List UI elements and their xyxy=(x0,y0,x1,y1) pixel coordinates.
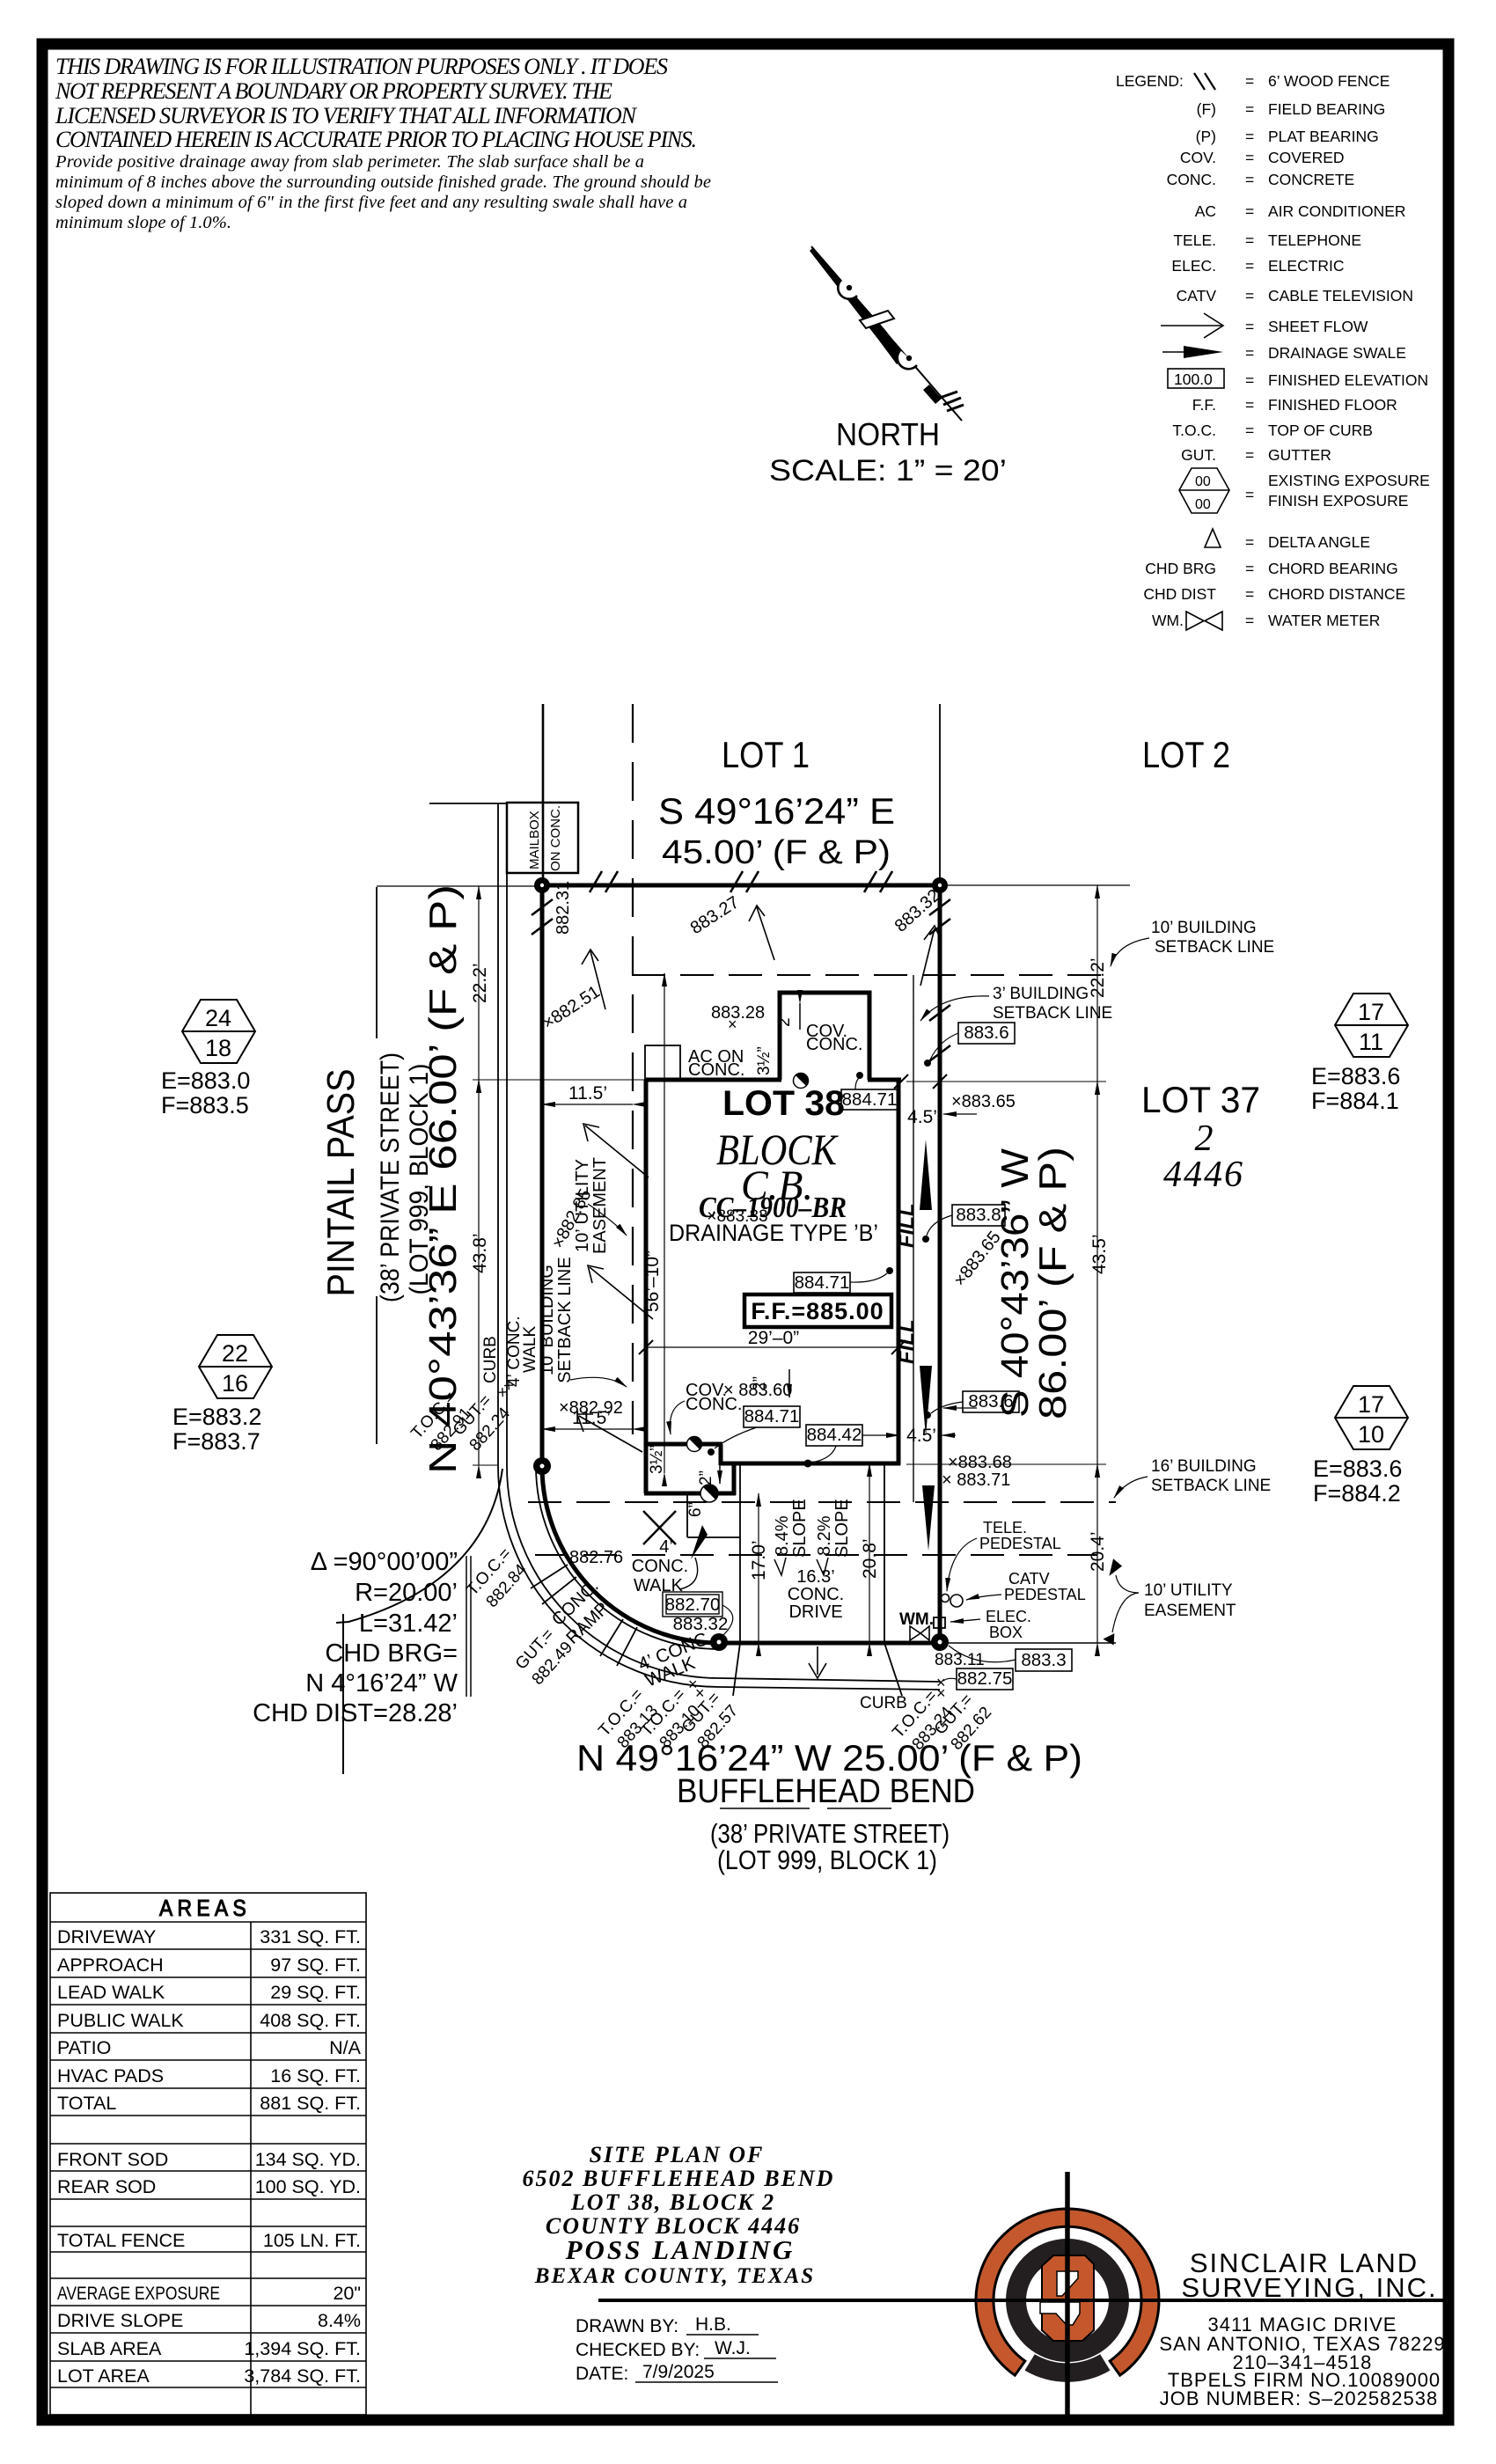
svg-text:minimum of 8 inches above the: minimum of 8 inches above the surroundin… xyxy=(55,172,711,192)
svg-text:×883.68: ×883.68 xyxy=(948,1453,1012,1472)
svg-text:4.5’: 4.5’ xyxy=(906,1426,936,1446)
svg-text:FRONT SOD: FRONT SOD xyxy=(57,2149,168,2170)
svg-text:=: = xyxy=(1245,446,1254,464)
svg-text:=: = xyxy=(1245,318,1254,335)
svg-text:00: 00 xyxy=(1195,474,1211,489)
svg-text:=: = xyxy=(1245,585,1254,603)
svg-text:CONC.: CONC. xyxy=(788,1585,844,1604)
svg-text:882.70: 882.70 xyxy=(665,1595,721,1615)
svg-text:COV.: COV. xyxy=(1180,149,1216,166)
svg-text:=: = xyxy=(1245,287,1254,304)
svg-text:16.3’: 16.3’ xyxy=(796,1567,834,1587)
svg-text:F=883.5: F=883.5 xyxy=(161,1092,249,1118)
svg-text:883.28: 883.28 xyxy=(711,1003,765,1023)
svg-text:CATV: CATV xyxy=(1008,1570,1050,1588)
svg-text:8.2%: 8.2% xyxy=(815,1515,834,1556)
svg-text:331 SQ. FT.: 331 SQ. FT. xyxy=(260,1926,361,1947)
svg-text:E=883.6: E=883.6 xyxy=(1311,1063,1400,1089)
svg-text:BUFFLEHEAD BEND: BUFFLEHEAD BEND xyxy=(677,1773,975,1810)
svg-text:11.5’: 11.5’ xyxy=(568,1083,607,1104)
svg-text:882.75: 882.75 xyxy=(957,1668,1013,1689)
svg-text:PATIO: PATIO xyxy=(57,2037,111,2058)
svg-text:11: 11 xyxy=(1359,1029,1383,1055)
svg-text:(LOT 999, BLOCK 1): (LOT 999, BLOCK 1) xyxy=(717,1844,937,1875)
svg-text:TOTAL: TOTAL xyxy=(57,2093,116,2114)
svg-text:10’ BUILDING: 10’ BUILDING xyxy=(1151,919,1257,937)
svg-text:2”: 2” xyxy=(775,1012,794,1027)
svg-text:134 SQ. YD.: 134 SQ. YD. xyxy=(255,2149,361,2170)
svg-text:FINISH EXPOSURE: FINISH EXPOSURE xyxy=(1268,492,1408,510)
svg-text:H.B.: H.B. xyxy=(695,2314,731,2335)
svg-text:TELE.: TELE. xyxy=(1173,231,1216,249)
svg-text:sloped down a minimum of 6" in: sloped down a minimum of 6" in the first… xyxy=(55,193,687,212)
svg-text:3½”: 3½” xyxy=(648,1445,666,1474)
svg-text:TELEPHONE: TELEPHONE xyxy=(1268,231,1361,249)
svg-text:3,784 SQ. FT.: 3,784 SQ. FT. xyxy=(244,2365,361,2387)
svg-text:L=31.42’: L=31.42’ xyxy=(359,1610,458,1638)
svg-text:PEDESTAL: PEDESTAL xyxy=(979,1535,1061,1552)
svg-text:minimum slope of 1.0%.: minimum slope of 1.0%. xyxy=(55,213,231,232)
svg-text:DRIVE: DRIVE xyxy=(788,1602,842,1622)
svg-text:881 SQ. FT.: 881 SQ. FT. xyxy=(260,2093,361,2114)
svg-text:FILL: FILL xyxy=(895,1319,919,1364)
svg-text:00: 00 xyxy=(1195,497,1211,512)
svg-text:CATV: CATV xyxy=(1177,287,1217,304)
svg-text:× 883.60: × 883.60 xyxy=(723,1381,792,1400)
svg-text:4.5’: 4.5’ xyxy=(907,1107,937,1127)
svg-text:DRAINAGE TYPE ’B’: DRAINAGE TYPE ’B’ xyxy=(669,1220,878,1246)
svg-text:TELE.: TELE. xyxy=(983,1519,1027,1536)
svg-text:884.71: 884.71 xyxy=(842,1089,898,1110)
svg-text:100.0: 100.0 xyxy=(1174,370,1213,388)
svg-text:CONTAINED HEREIN IS ACCURATE P: CONTAINED HEREIN IS ACCURATE PRIOR TO PL… xyxy=(55,127,697,152)
svg-text:24: 24 xyxy=(205,1005,231,1031)
svg-text:29’–0”: 29’–0” xyxy=(748,1328,799,1348)
svg-text:8.4%: 8.4% xyxy=(773,1515,792,1556)
svg-text:× 883.71: × 883.71 xyxy=(942,1470,1010,1490)
svg-text:AIR CONDITIONER: AIR CONDITIONER xyxy=(1268,202,1406,220)
svg-text:SETBACK LINE: SETBACK LINE xyxy=(1155,938,1274,957)
svg-text:GUTTER: GUTTER xyxy=(1268,446,1331,464)
svg-text:TOP OF CURB: TOP OF CURB xyxy=(1268,422,1373,439)
svg-text:SLOPE: SLOPE xyxy=(832,1499,852,1558)
svg-text:AC: AC xyxy=(1195,202,1216,220)
svg-text:DRAINAGE SWALE: DRAINAGE SWALE xyxy=(1268,344,1406,362)
svg-text:=: = xyxy=(1245,396,1254,414)
svg-text:F=884.2: F=884.2 xyxy=(1313,1480,1401,1507)
svg-text:R=20.00’: R=20.00’ xyxy=(355,1579,458,1607)
svg-text:CABLE TELEVISION: CABLE TELEVISION xyxy=(1268,287,1413,304)
svg-text:6’ WOOD FENCE: 6’ WOOD FENCE xyxy=(1268,72,1390,90)
svg-text:F=884.1: F=884.1 xyxy=(1311,1088,1399,1114)
svg-text:884.42: 884.42 xyxy=(807,1425,862,1445)
svg-text:ON CONC.: ON CONC. xyxy=(548,805,563,871)
svg-text:F=883.7: F=883.7 xyxy=(172,1428,260,1455)
svg-text:PEDESTAL: PEDESTAL xyxy=(1004,1586,1086,1603)
svg-text:884.71: 884.71 xyxy=(744,1406,800,1426)
svg-text:NOT REPRESENT A BOUNDARY OR PR: NOT REPRESENT A BOUNDARY OR PROPERTY SUR… xyxy=(55,78,612,104)
svg-text:×883.65: ×883.65 xyxy=(951,1092,1016,1111)
svg-text:CURB: CURB xyxy=(860,1694,907,1712)
svg-text:CHD BRG: CHD BRG xyxy=(1145,560,1216,577)
svg-text:FILL: FILL xyxy=(895,1203,919,1248)
svg-text:DRIVE SLOPE: DRIVE SLOPE xyxy=(57,2310,183,2331)
svg-text:LEAD WALK: LEAD WALK xyxy=(57,1982,165,2003)
svg-text:CONC.: CONC. xyxy=(632,1557,688,1576)
svg-text:F.F.: F.F. xyxy=(1192,396,1216,414)
svg-text:883.6: 883.6 xyxy=(964,1023,1008,1043)
svg-text:PUBLIC WALK: PUBLIC WALK xyxy=(57,2010,184,2031)
svg-text:=: = xyxy=(1245,149,1254,166)
svg-text:=: = xyxy=(1245,231,1254,249)
svg-text:W.J.: W.J. xyxy=(715,2338,751,2358)
svg-text:8.4%: 8.4% xyxy=(318,2310,361,2331)
svg-text:SLAB AREA: SLAB AREA xyxy=(57,2338,162,2359)
svg-text:BOX: BOX xyxy=(989,1624,1023,1641)
svg-text:100 SQ. YD.: 100 SQ. YD. xyxy=(255,2176,361,2197)
svg-text:N/A: N/A xyxy=(329,2037,362,2058)
svg-text:105 LN. FT.: 105 LN. FT. xyxy=(263,2230,361,2251)
svg-text:2: 2 xyxy=(1195,1118,1214,1159)
svg-text:E=883.2: E=883.2 xyxy=(172,1404,261,1430)
svg-text:LOT 38, BLOCK 2: LOT 38, BLOCK 2 xyxy=(570,2189,775,2215)
svg-text:TOTAL FENCE: TOTAL FENCE xyxy=(57,2230,185,2251)
svg-text:10: 10 xyxy=(1358,1421,1384,1448)
svg-text:883.11: 883.11 xyxy=(935,1651,985,1669)
svg-text:6502 BUFFLEHEAD BEND: 6502 BUFFLEHEAD BEND xyxy=(523,2166,835,2191)
svg-text:45.00’ (F & P): 45.00’ (F & P) xyxy=(662,834,891,871)
svg-text:22: 22 xyxy=(222,1340,248,1367)
svg-text:N 40°43’36” E 66.00’ (F & P): N 40°43’36” E 66.00’ (F & P) xyxy=(422,884,465,1474)
svg-text:(P): (P) xyxy=(1196,128,1216,145)
svg-text:CHD BRG=: CHD BRG= xyxy=(325,1639,458,1668)
svg-text:SETBACK LINE: SETBACK LINE xyxy=(555,1257,575,1382)
svg-text:AREAS: AREAS xyxy=(159,1895,251,1921)
svg-text:=: = xyxy=(1245,533,1254,551)
svg-text:DATE:: DATE: xyxy=(576,2364,628,2384)
svg-text:=: = xyxy=(1245,371,1254,389)
svg-text:10’ BUILDING: 10’ BUILDING xyxy=(538,1265,557,1375)
svg-text:E=883.0: E=883.0 xyxy=(161,1067,250,1094)
svg-text:=: = xyxy=(1245,612,1254,629)
svg-text:17: 17 xyxy=(1358,1391,1384,1418)
svg-text:LOT AREA: LOT AREA xyxy=(57,2365,150,2387)
svg-text:EASEMENT: EASEMENT xyxy=(590,1157,610,1254)
svg-text:×: × xyxy=(728,1016,737,1033)
svg-text:WALK: WALK xyxy=(521,1326,539,1373)
svg-text:=: = xyxy=(1245,72,1254,90)
svg-text:CHD DIST=28.28’: CHD DIST=28.28’ xyxy=(253,1699,458,1727)
svg-text:ELECTRIC: ELECTRIC xyxy=(1268,257,1345,275)
svg-text:=: = xyxy=(1245,344,1254,362)
svg-text:CHECKED BY:: CHECKED BY: xyxy=(576,2340,700,2360)
svg-text:=: = xyxy=(1245,171,1254,188)
svg-text:20.4’: 20.4’ xyxy=(1088,1531,1108,1572)
svg-text:POSS LANDING: POSS LANDING xyxy=(565,2234,796,2265)
svg-text:=: = xyxy=(1245,202,1254,220)
svg-text:ELEC.: ELEC. xyxy=(1171,257,1216,275)
svg-text:LOT 1: LOT 1 xyxy=(722,734,810,775)
svg-text:SLOPE: SLOPE xyxy=(790,1499,810,1558)
svg-text:1,394 SQ. FT.: 1,394 SQ. FT. xyxy=(244,2338,361,2359)
svg-text:LOT 38: LOT 38 xyxy=(722,1084,845,1123)
svg-text:N 4°16’24” W: N 4°16’24” W xyxy=(305,1669,458,1698)
svg-text:883.3: 883.3 xyxy=(1021,1650,1066,1670)
svg-text:2”: 2” xyxy=(697,1470,715,1485)
svg-text:CHORD BEARING: CHORD BEARING xyxy=(1268,560,1398,577)
svg-text:LOT 2: LOT 2 xyxy=(1142,734,1230,775)
svg-text:F.F.=885.00: F.F.=885.00 xyxy=(751,1298,884,1324)
svg-text:WATER METER: WATER METER xyxy=(1268,612,1380,629)
svg-text:=: = xyxy=(1245,100,1254,118)
svg-text:PINTAIL PASS: PINTAIL PASS xyxy=(319,1069,363,1297)
svg-text:=: = xyxy=(1245,560,1254,577)
svg-text:EASEMENT: EASEMENT xyxy=(1144,1602,1236,1620)
svg-text:4446: 4446 xyxy=(1163,1155,1244,1195)
svg-text:=: = xyxy=(1245,128,1254,145)
svg-text:=: = xyxy=(1245,422,1254,439)
svg-text:882.76: 882.76 xyxy=(569,1548,623,1567)
svg-text:LICENSED SURVEYOR IS TO VERIFY: LICENSED SURVEYOR IS TO VERIFY THAT ALL … xyxy=(55,103,638,128)
svg-text:16: 16 xyxy=(222,1370,248,1397)
svg-text:LOT 37: LOT 37 xyxy=(1141,1079,1260,1120)
svg-text:LEGEND:: LEGEND: xyxy=(1116,72,1184,90)
svg-text:CHORD DISTANCE: CHORD DISTANCE xyxy=(1268,585,1405,603)
svg-text:FINISHED ELEVATION: FINISHED ELEVATION xyxy=(1268,371,1428,389)
svg-text:SHEET FLOW: SHEET FLOW xyxy=(1268,318,1368,335)
svg-text:AVERAGE EXPOSURE: AVERAGE EXPOSURE xyxy=(57,2283,220,2304)
svg-text:(38’ PRIVATE STREET): (38’ PRIVATE STREET) xyxy=(376,1052,405,1302)
svg-text:ELEC.: ELEC. xyxy=(986,1608,1031,1625)
svg-text:3’ BUILDING: 3’ BUILDING xyxy=(993,985,1089,1003)
svg-text:S 40°43’36” W: S 40°43’36” W xyxy=(994,1148,1037,1418)
svg-text:43.8’: 43.8’ xyxy=(470,1233,490,1273)
svg-text:GUT.: GUT. xyxy=(1181,446,1216,464)
svg-text:16 SQ. FT.: 16 SQ. FT. xyxy=(270,2065,361,2086)
svg-text:3½”: 3½” xyxy=(755,1046,774,1075)
svg-text:T.O.C.: T.O.C. xyxy=(1172,422,1216,439)
svg-text:20": 20" xyxy=(333,2283,361,2304)
svg-text:7/9/2025: 7/9/2025 xyxy=(642,2362,715,2382)
svg-text:Provide positive drainage away: Provide positive drainage away from slab… xyxy=(55,152,644,172)
svg-text:4’: 4’ xyxy=(659,1537,673,1557)
svg-text:(F): (F) xyxy=(1197,100,1216,118)
svg-text:6”: 6” xyxy=(686,1502,705,1517)
svg-text:CONC.: CONC. xyxy=(806,1035,862,1054)
svg-text:22.2’: 22.2’ xyxy=(1088,957,1108,998)
svg-text:DRAWN BY:: DRAWN BY: xyxy=(576,2316,678,2336)
svg-text:REAR SOD: REAR SOD xyxy=(57,2176,156,2197)
svg-text:EXISTING EXPOSURE: EXISTING EXPOSURE xyxy=(1268,472,1430,489)
svg-text:S 49°16’24” E: S 49°16’24” E xyxy=(658,790,895,832)
svg-text:BEXAR COUNTY, TEXAS: BEXAR COUNTY, TEXAS xyxy=(534,2264,815,2288)
svg-text:CURB: CURB xyxy=(481,1336,500,1383)
svg-text:DRIVEWAY: DRIVEWAY xyxy=(57,1926,156,1947)
svg-text:APPROACH: APPROACH xyxy=(57,1954,164,1976)
svg-text:20.8’: 20.8’ xyxy=(860,1538,880,1579)
svg-text:DELTA ANGLE: DELTA ANGLE xyxy=(1268,533,1370,551)
svg-text:THIS DRAWING IS FOR ILLUSTRATI: THIS DRAWING IS FOR ILLUSTRATION PURPOSE… xyxy=(55,54,668,79)
svg-text:=: = xyxy=(1245,257,1254,275)
svg-text:PLAT BEARING: PLAT BEARING xyxy=(1268,128,1379,145)
svg-text:408 SQ. FT.: 408 SQ. FT. xyxy=(260,2010,361,2031)
svg-text:N 49°16’24” W 25.00’ (F & P): N 49°16’24” W 25.00’ (F & P) xyxy=(576,1737,1082,1778)
svg-text:FIELD BEARING: FIELD BEARING xyxy=(1268,100,1385,118)
svg-text:×882.51: ×882.51 xyxy=(539,982,604,1033)
svg-text:JOB NUMBER: S–202582538: JOB NUMBER: S–202582538 xyxy=(1160,2387,1439,2409)
svg-text:10’ UTILITY: 10’ UTILITY xyxy=(1144,1581,1233,1600)
svg-text:=: = xyxy=(1245,486,1254,503)
svg-text:NORTH: NORTH xyxy=(836,416,940,452)
svg-text:97 SQ. FT.: 97 SQ. FT. xyxy=(270,1954,361,1976)
svg-text:884.71: 884.71 xyxy=(795,1272,850,1293)
svg-text:FINISHED FLOOR: FINISHED FLOOR xyxy=(1268,396,1397,414)
svg-text:WM.: WM. xyxy=(1152,612,1184,629)
svg-text:E=883.6: E=883.6 xyxy=(1313,1456,1402,1482)
svg-text:SETBACK LINE: SETBACK LINE xyxy=(993,1004,1112,1023)
svg-text:86.00’ (F & P): 86.00’ (F & P) xyxy=(1031,1147,1074,1419)
svg-text:16’ BUILDING: 16’ BUILDING xyxy=(1151,1457,1257,1476)
svg-text:COVERED: COVERED xyxy=(1268,149,1345,166)
svg-text:17.0’: 17.0’ xyxy=(749,1540,769,1580)
svg-text:10’ UTILITY: 10’ UTILITY xyxy=(573,1159,592,1252)
svg-text:SCALE: 1” = 20’: SCALE: 1” = 20’ xyxy=(769,454,1007,488)
svg-text:CHD DIST: CHD DIST xyxy=(1143,585,1216,603)
svg-text:CONC.: CONC. xyxy=(1167,171,1216,188)
svg-text:18: 18 xyxy=(205,1035,231,1061)
svg-text:43.5’: 43.5’ xyxy=(1089,1234,1110,1274)
svg-text:HVAC PADS: HVAC PADS xyxy=(57,2065,164,2086)
svg-text:CONC.: CONC. xyxy=(688,1060,744,1080)
svg-text:SITE PLAN OF: SITE PLAN OF xyxy=(590,2142,765,2167)
svg-text:SURVEYING, INC.: SURVEYING, INC. xyxy=(1181,2272,1437,2303)
svg-text:11.5’: 11.5’ xyxy=(572,1408,611,1428)
svg-text:56’–10”: 56’–10” xyxy=(642,1250,663,1312)
svg-text:MAILBOX: MAILBOX xyxy=(527,810,542,869)
svg-text:Δ =90°00’00”: Δ =90°00’00” xyxy=(311,1548,458,1576)
svg-text:883.27: 883.27 xyxy=(687,892,743,938)
svg-text:CONCRETE: CONCRETE xyxy=(1268,171,1354,188)
svg-text:22.2’: 22.2’ xyxy=(470,963,490,1003)
svg-text:17: 17 xyxy=(1358,999,1384,1025)
svg-text:882.31: 882.31 xyxy=(554,881,573,935)
svg-text:SETBACK LINE: SETBACK LINE xyxy=(1151,1477,1271,1495)
svg-text:29 SQ. FT.: 29 SQ. FT. xyxy=(270,1982,361,2003)
